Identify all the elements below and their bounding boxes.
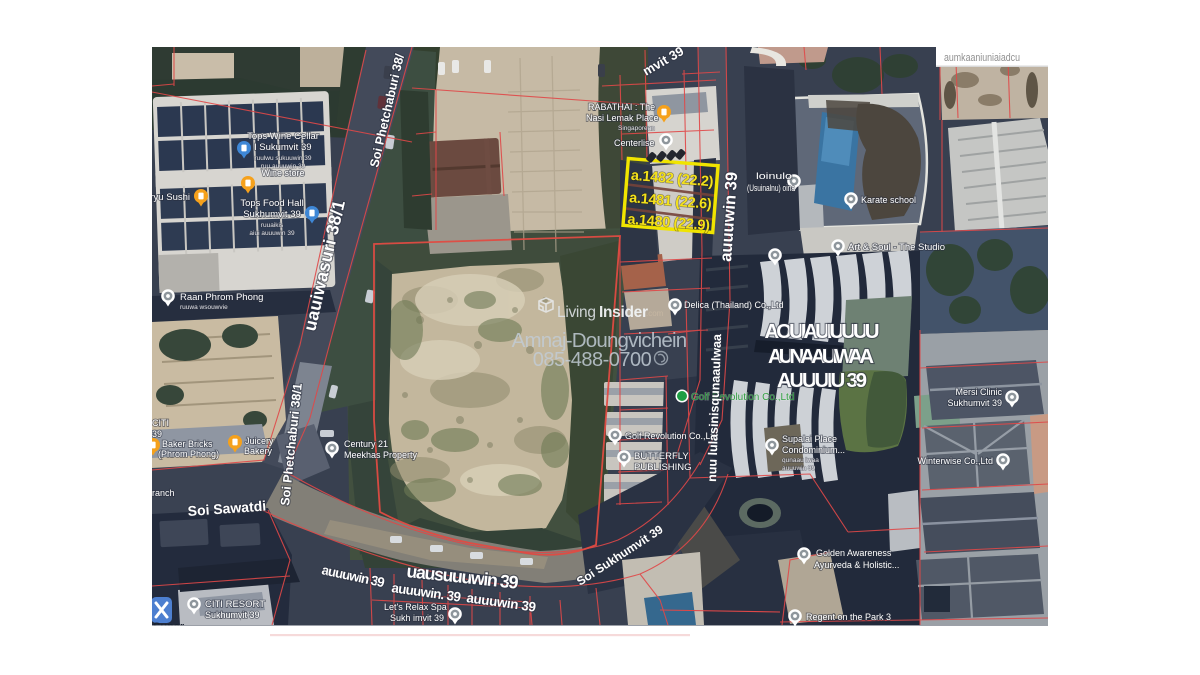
svg-text:Karate school: Karate school (861, 195, 916, 205)
svg-text:Condominium...: Condominium... (782, 445, 845, 455)
svg-text:(Phrom Phong): (Phrom Phong) (158, 449, 219, 459)
svg-text:Supalai Place: Supalai Place (782, 434, 837, 444)
svg-text:Sukhumvit 39: Sukhumvit 39 (947, 398, 1002, 408)
svg-text:Regent on the Park 3: Regent on the Park 3 (806, 612, 891, 622)
svg-text:Bakery: Bakery (244, 446, 273, 456)
svg-text:Winterwise Co.,Ltd: Winterwise Co.,Ltd (917, 456, 993, 466)
svg-text:Golf Revolution Co.,Ltd: Golf Revolution Co.,Ltd (691, 392, 794, 403)
svg-text:Ayurveda & Holistic...: Ayurveda & Holistic... (814, 560, 899, 570)
svg-text:.com: .com (646, 309, 664, 318)
svg-text:AUNAAUIWAA: AUNAAUIWAA (768, 345, 874, 368)
svg-text:auuuwin 39: auuuwin 39 (782, 465, 816, 472)
svg-text:ranch: ranch (152, 488, 175, 498)
svg-text:Meekhas Property: Meekhas Property (344, 450, 418, 460)
svg-text:Centerlise: Centerlise (614, 138, 655, 148)
svg-text:Golf Revolution Co.,Ltd: Golf Revolution Co.,Ltd (625, 431, 718, 441)
svg-text:Golden Awareness: Golden Awareness (816, 548, 892, 558)
svg-text:Art & Soul - The Studio: Art & Soul - The Studio (848, 242, 945, 253)
svg-text:l Sukumvit 39: l Sukumvit 39 (254, 142, 311, 153)
svg-text:Juicery: Juicery (245, 436, 274, 446)
svg-text:aiui auuuwin 39: aiui auuuwin 39 (249, 230, 295, 237)
svg-text:085-488-0700: 085-488-0700 (533, 349, 652, 371)
svg-text:Wine store: Wine store (261, 168, 304, 178)
svg-text:Baker Bricks: Baker Bricks (162, 439, 213, 449)
svg-text:qunaau lwaa: qunaau lwaa (782, 457, 819, 464)
svg-text:39: 39 (152, 429, 162, 439)
svg-text:ruuaikis: ruuaikis (261, 222, 284, 229)
svg-text:Let's Relax Spa: Let's Relax Spa (384, 602, 447, 612)
svg-text:Tops Food Hall: Tops Food Hall (240, 198, 303, 209)
svg-text:loinulo: loinulo (756, 171, 792, 181)
svg-text:PUBLISHING: PUBLISHING (634, 462, 692, 473)
svg-text:aumkaaniuniaiadcu: aumkaaniuniaiadcu (944, 52, 1020, 64)
svg-text:(Usuinalnu) oina: (Usuinalnu) oina (747, 183, 795, 193)
svg-text:Sukh imvit 39: Sukh imvit 39 (390, 613, 444, 623)
svg-text:Century 21: Century 21 (344, 439, 388, 449)
svg-text:Raan Phrom Phong: Raan Phrom Phong (180, 292, 263, 303)
svg-text:Delica (Thailand) Co.,Ltd: Delica (Thailand) Co.,Ltd (684, 300, 784, 310)
svg-text:Living: Living (557, 304, 596, 321)
svg-text:CITI RESORT: CITI RESORT (205, 599, 265, 610)
svg-text:iryu Sushi: iryu Sushi (148, 192, 190, 203)
svg-text:ruuwa wsouwvie: ruuwa wsouwvie (180, 304, 228, 311)
svg-text:ruulwu sukuuwin 39: ruulwu sukuuwin 39 (254, 155, 311, 162)
svg-text:Sukhumvit 39: Sukhumvit 39 (205, 610, 260, 620)
svg-text:Mersi Clinic: Mersi Clinic (955, 387, 1002, 397)
svg-text:CITI: CITI (152, 418, 169, 428)
svg-text:Sukhumvit 39: Sukhumvit 39 (243, 209, 301, 220)
svg-text:RABATHAI : The: RABATHAI : The (588, 102, 655, 112)
svg-text:AUUUIU 39: AUUUIU 39 (777, 369, 867, 392)
svg-text:Tops Wine Cellar: Tops Wine Cellar (247, 131, 319, 142)
svg-text:Nasi Lemak Place: Nasi Lemak Place (586, 113, 659, 123)
svg-text:AOUIAUIUUUU: AOUIAUIUUUU (765, 320, 880, 343)
svg-text:BUTTERFLY: BUTTERFLY (634, 451, 689, 462)
svg-text:Insider: Insider (599, 304, 648, 321)
svg-text:Singaporean: Singaporean (618, 125, 655, 132)
